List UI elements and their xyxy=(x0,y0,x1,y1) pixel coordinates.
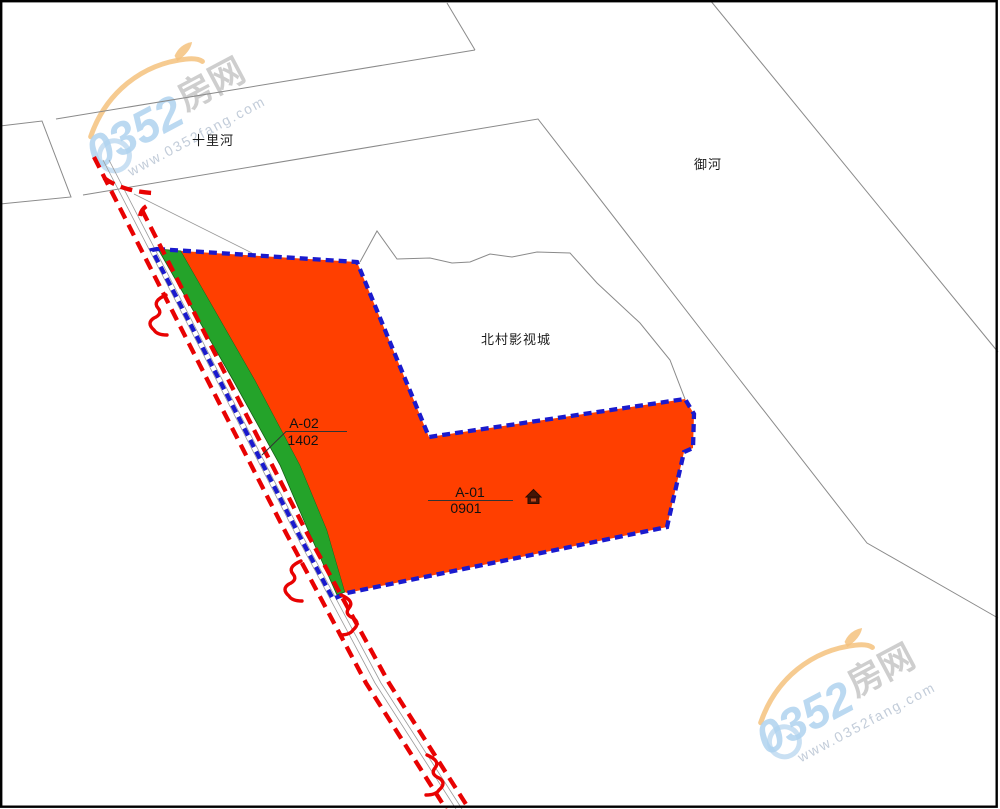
a02-parcel-number: 1402 xyxy=(287,432,318,448)
a01-parcel-number: 0901 xyxy=(450,500,481,516)
shilihe-band-top-line xyxy=(56,50,475,119)
yuhe-east-line xyxy=(710,0,998,352)
shilihe-band-west-sliver xyxy=(0,121,71,204)
label-shilihe-river: 十里河 xyxy=(192,133,234,148)
watermark-top-left: 0352 房网 www.0352fang.com xyxy=(64,23,268,191)
label-yuhe-river: 御河 xyxy=(694,157,722,172)
road-breakline-symbol xyxy=(285,561,302,601)
road-breakline-symbol xyxy=(150,295,167,335)
label-beicun-film-city: 北村影视城 xyxy=(481,332,551,347)
watermark-bottom-right: 0352 房网 www.0352fang.com xyxy=(734,609,938,777)
north-parcel-east-edge xyxy=(447,3,475,50)
a01-parcel-code: A-01 xyxy=(455,484,485,500)
road-fork-edge-line xyxy=(134,194,252,253)
beicun-parcel-boundary xyxy=(360,231,685,399)
a02-parcel-code: A-02 xyxy=(289,415,319,431)
map-canvas: 0352 房网 www.0352fang.com 0352 房网 www.035… xyxy=(0,0,1000,809)
planning-map: 0352 房网 www.0352fang.com 0352 房网 www.035… xyxy=(0,0,1000,809)
